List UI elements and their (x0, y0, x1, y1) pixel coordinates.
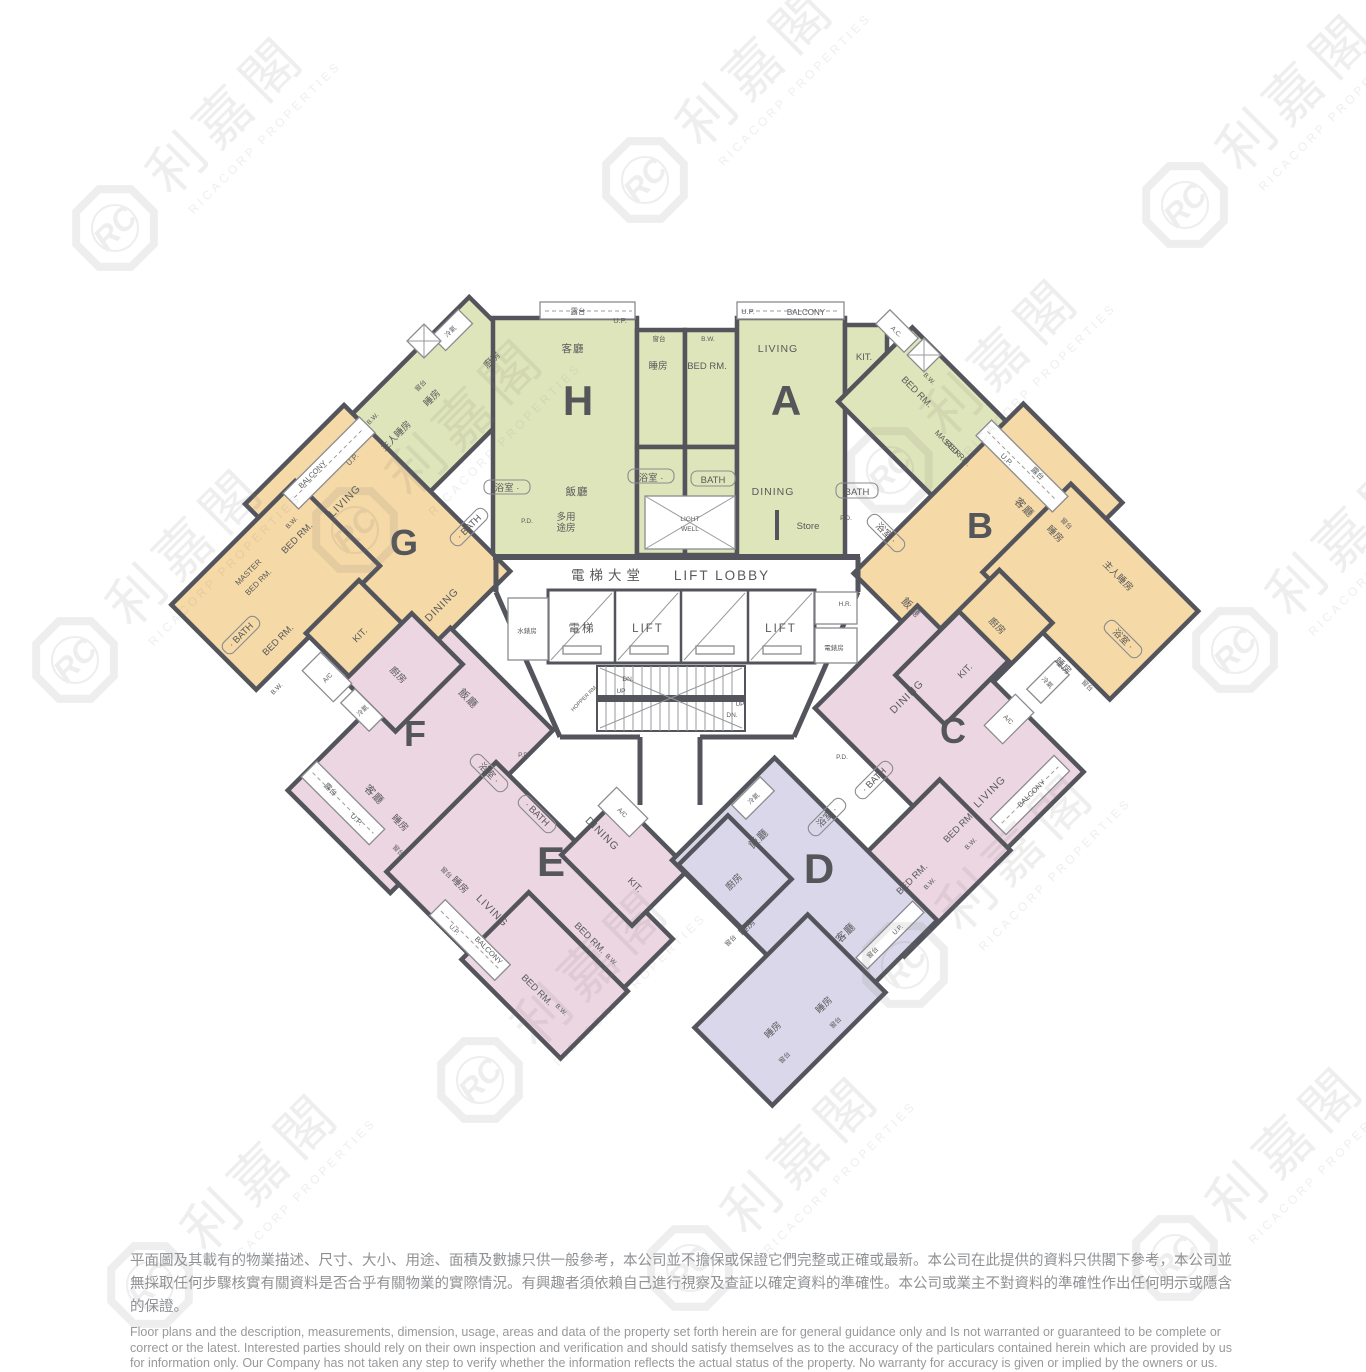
lobby-title-zh: 電梯大堂 (571, 568, 645, 583)
stairs-up2: UP (735, 701, 744, 708)
a-bw-label: B.W. (701, 336, 715, 343)
watermark: RC 利嘉閣 RICACORP PROPERTIES (60, 6, 344, 290)
water-meter-label: 水錶房 (517, 626, 537, 635)
stairs-up1: UP (616, 688, 625, 695)
watermark-layer: RC 利嘉閣 RICACORP PROPERTIES RC 利嘉閣 RICACO… (20, 0, 1366, 1347)
svg-text:RC: RC (46, 630, 105, 689)
c-pd: P.D. (836, 754, 848, 761)
lift4-label: LIFT (765, 623, 797, 635)
svg-text:RC: RC (1156, 175, 1215, 234)
h-bath-zh: 浴室 · (495, 482, 520, 494)
lift1-label: 電梯 (569, 622, 596, 635)
a-kit-label: KIT. (856, 352, 872, 363)
h-up-label: U.P. (613, 316, 627, 325)
d-bay1: 窗台 (723, 933, 739, 949)
a-pd: P.D. (840, 515, 852, 522)
f-pd: P.D. (518, 752, 530, 759)
watermark: RC 利嘉閣 RICACORP PROPERTIES (1130, 0, 1366, 267)
staircase (597, 666, 745, 731)
emeter-label: 電錶房 (824, 643, 844, 652)
mid-bay: 窗台 (653, 334, 666, 343)
a-mid-bath: BATH (701, 475, 726, 486)
a-store-label: Store (797, 521, 820, 532)
svg-text:RC: RC (86, 198, 145, 257)
mid-bath-zh: 浴室 · (639, 472, 664, 484)
a-unit-letter: A (771, 377, 801, 424)
floor-plan: 露台 U.P. 冷氣 廚房 窗台 睡房 B.W. 主人睡房 客廳 H 飯廳 多用… (0, 0, 1366, 1366)
disclaimer-zh: 平面圖及其載有的物業描述、尺寸、大小、用途、面積及數據只供一般參考，本公司並不擔… (130, 1250, 1244, 1319)
svg-text:RC: RC (1206, 620, 1265, 679)
hr-label: H.R. (839, 601, 852, 608)
b-unit-letter: B (967, 505, 993, 546)
disclaimer: 平面圖及其載有的物業描述、尺寸、大小、用途、面積及數據只供一般參考，本公司並不擔… (130, 1250, 1244, 1372)
g-bw2: B.W. (270, 682, 285, 697)
h-living-label: 客廳 (562, 342, 585, 355)
d-unit-letter: D (804, 845, 834, 892)
lobby-title-en: LIFT LOBBY (674, 568, 770, 583)
lightwell-l1: LIGHT (680, 516, 699, 523)
a-bed-label: BED RM. (687, 361, 727, 372)
c-unit-letter: C (940, 710, 966, 751)
h-pd: P.D. (521, 518, 533, 525)
h-balcony-label: 露台 (571, 306, 586, 316)
stairs-dn1: DN. (622, 676, 633, 683)
disclaimer-en: Floor plans and the description, measure… (130, 1325, 1244, 1372)
watermark: RC 利嘉閣 RICACORP PROPERTIES (1180, 428, 1366, 712)
svg-text:RC: RC (616, 150, 675, 209)
lift2-label: LIFT (632, 623, 664, 635)
stairs-dn2: DN. (726, 712, 737, 719)
hopper-label: HOPPER RM. (570, 684, 599, 713)
h-multi2: 途房 (556, 522, 575, 534)
h-dining-label: 飯廳 (566, 485, 589, 498)
h-multi1: 多用 (556, 511, 575, 523)
a-dining-label: DINING (752, 486, 795, 498)
svg-text:RC: RC (451, 1050, 510, 1109)
watermark: RC 利嘉閣 RICACORP PROPERTIES (590, 0, 874, 242)
a-living-label: LIVING (758, 343, 798, 355)
lightwell-l2: WELL (681, 526, 699, 533)
a-balcony-label: BALCONY (787, 308, 826, 317)
e-unit-letter: E (537, 838, 565, 885)
a-up-label: U.P. (741, 307, 755, 316)
mid-bed-zh: 睡房 (648, 360, 667, 372)
f-unit-letter: F (404, 713, 426, 754)
